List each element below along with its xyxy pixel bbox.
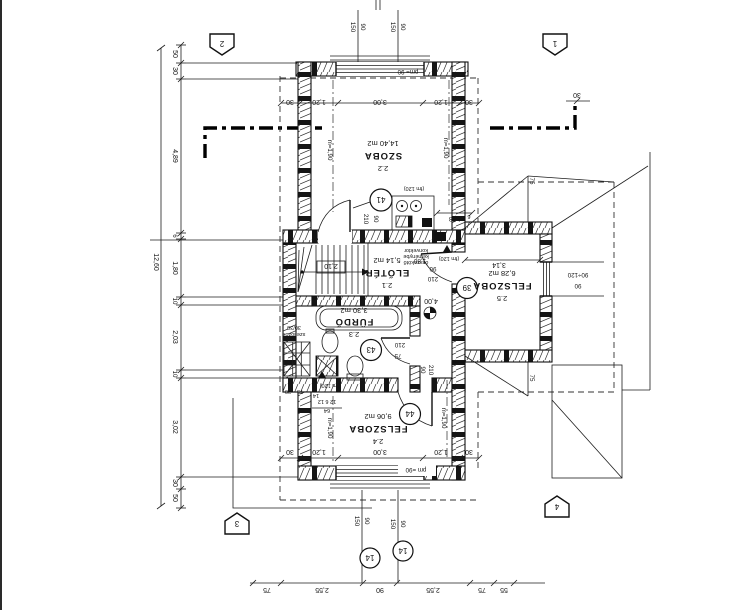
dormer-dim-bottom: 75 [528,375,535,382]
door-39-height: 210 [427,275,438,282]
dim-left-4: 1,80 [171,261,178,275]
room-25-area: 6,28 m2 [488,269,515,278]
room-24-height-left: m=1,90 [326,418,333,439]
room-szoba-number: 2.2 [378,164,388,173]
dim-top-0: 30 [286,98,294,105]
dim-left-7: 10 [171,371,178,378]
dormer-dim-top: 75 [528,178,535,185]
vent-note-line1: szellőzők [282,331,305,337]
door-44-height: 210 [427,365,434,376]
door-43-width: 75 [394,352,401,359]
dim-small-64: 64 [324,407,330,413]
section-marker-4-label: 4 [554,502,559,511]
dim-bo-1: 2,55 [315,586,329,593]
top-window-b-height: 90 [399,24,406,31]
bottom-parapet-label: pm =90 [405,466,426,473]
room-furdo-number: 2.3 [349,330,359,339]
dim-left-3: 6 [171,234,178,238]
top-window-a-height: 90 [359,24,366,31]
dim-left-0: 50 [171,50,178,58]
room-24-area: 9,06 m2 [364,412,391,421]
dim-bi-4: 30 [465,448,473,455]
bottom-window-b-width: 150 [389,519,396,530]
door-39-width: 90 [429,265,436,272]
scan-edge [0,0,2,610]
level-value: 4,00 [424,297,438,304]
window-bubble-14-a: 14 [365,553,374,562]
right-window-size: 90÷120 [567,271,588,278]
door-39-bubble: 39 [462,283,471,292]
room-25-number: 2.5 [497,294,507,303]
dim-left-2: 4,89 [171,149,178,163]
top-window-a-width: 150 [349,22,356,33]
top-parapet-label: pm= 90 [397,68,418,75]
section-marker-3-label: 3 [234,519,239,528]
dim-top-1: 1,20 [312,98,326,105]
dim-left-8: 3,02 [171,420,178,434]
room-eloter-number: 2.1 [382,281,392,290]
dim-top-2: 3,00 [373,98,387,105]
room-24-height-right: m=1,90 [440,408,447,429]
door-43-height: 210 [394,341,405,348]
room-24-number: 2.4 [373,437,383,446]
dim-bi-2: 3,00 [373,448,387,455]
dim-bo-5: 55 [500,586,508,593]
room-eloter-name: ELŐTÉR [365,267,410,279]
dim-left-10: 50 [171,494,178,502]
dim-top-3: 1,20 [434,98,448,105]
dim-small-30: 30 [285,388,291,394]
stair-width-label: 2,10 [324,262,338,269]
top-window-b-width: 150 [389,22,396,33]
dim-eave-6: 6 [467,213,470,219]
dim-small-75: 75 [297,388,303,394]
door-43-bubble: 43 [366,345,375,354]
bottom-window-b-height: 90 [399,521,406,528]
dim-small-12-6-12: 12 6 12 [318,398,336,404]
dim-bi-1: 1,20 [312,448,326,455]
dim-top-4: 30 [465,98,473,105]
door-41-bubble: 41 [376,195,385,204]
dim-left-total: 12,60 [152,253,159,271]
dim-top-right-offset: 30 [573,91,581,98]
dim-left-5: 10 [171,298,178,305]
dim-left-9: 30 [171,479,178,487]
vent-note-line2: 30/30 [287,324,301,330]
dim-3-14: 3,14 [492,261,506,268]
flue-label-c: (fm 120) [320,382,341,388]
window-bubble-14-b: 14 [398,546,407,555]
section-marker-1-label: 1 [552,39,557,48]
section-marker-2-label: 2 [219,39,224,48]
floor-plan-drawing: 12,60 50 30 4,89 6 1,80 10 2,03 10 3,02 … [0,0,750,610]
room-eloter-area: 5,14 m2 [373,256,400,265]
door-41-width: 90 [372,216,379,223]
dim-bo-2: 90 [376,586,384,593]
room-furdo-name: FÜRDŐ [335,316,374,328]
flue-label-b: (fm 120) [439,255,460,261]
door-44-bubble: 44 [405,409,414,418]
dim-bi-0: 30 [286,448,294,455]
floor-plan-sheet: 12,60 50 30 4,89 6 1,80 10 2,03 10 3,02 … [0,0,750,610]
dim-bi-3: 1,20 [434,448,448,455]
room-furdo-area: 3,30 m2 [340,306,367,315]
room-szoba-height-left: m=1,90 [326,140,333,161]
flue-label-a: (fm 120) [404,185,425,191]
room-24-name: FELSZOBA [348,423,407,434]
door-44-width: 90 [419,367,426,374]
room-szoba-name: SZOBA [364,150,402,161]
dim-small-14: 14 [313,392,319,398]
room-szoba-area: 14,40 m2 [367,139,398,148]
dim-bo-3: 2,55 [426,586,440,593]
dim-left-1: 30 [171,67,178,75]
convector-note-line3: konvektor [404,247,428,253]
dim-bo-4: 75 [478,586,486,593]
dim-left-6: 2,03 [171,330,178,344]
bottom-window-a-height: 90 [363,518,370,525]
right-window-sill: 90 [574,282,581,289]
room-szoba-height-right: m=1,90 [442,138,449,159]
bottom-window-a-width: 150 [353,516,360,527]
room-25-name: FELSZOBA [472,280,531,291]
dim-1-58: 1,58 [448,215,461,222]
dim-bo-0: 75 [263,586,271,593]
door-41-height: 210 [362,214,369,225]
